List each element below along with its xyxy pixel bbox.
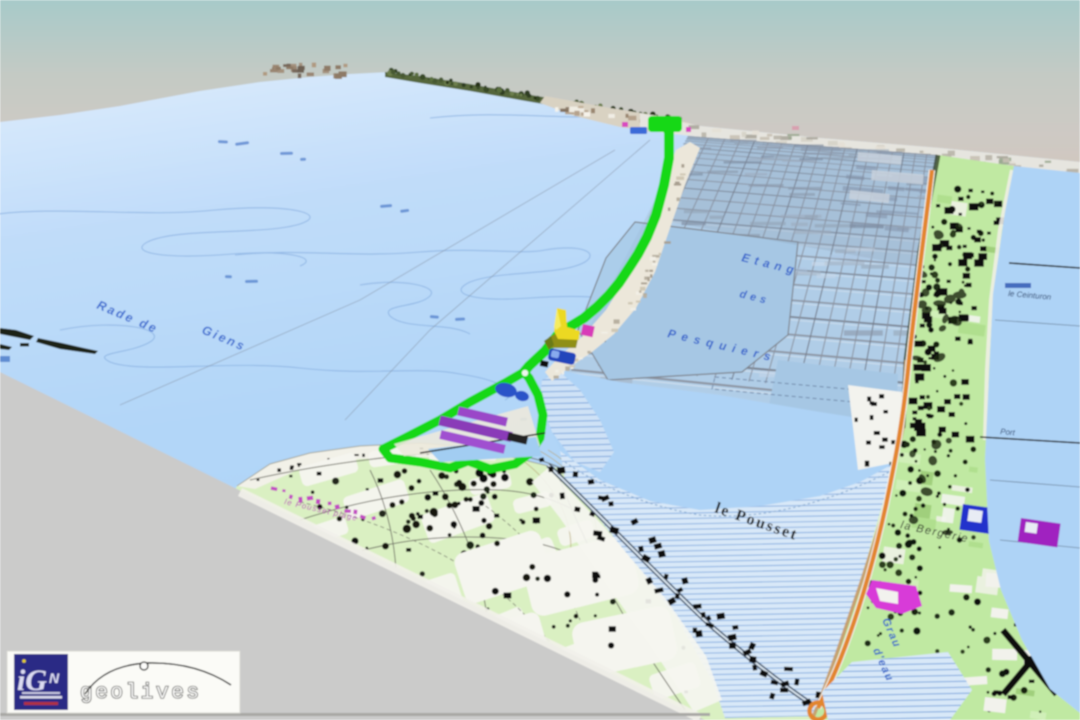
svg-text:Port: Port: [1000, 427, 1016, 437]
svg-text:geolives: geolives: [80, 682, 202, 705]
svg-text:N: N: [49, 670, 60, 686]
